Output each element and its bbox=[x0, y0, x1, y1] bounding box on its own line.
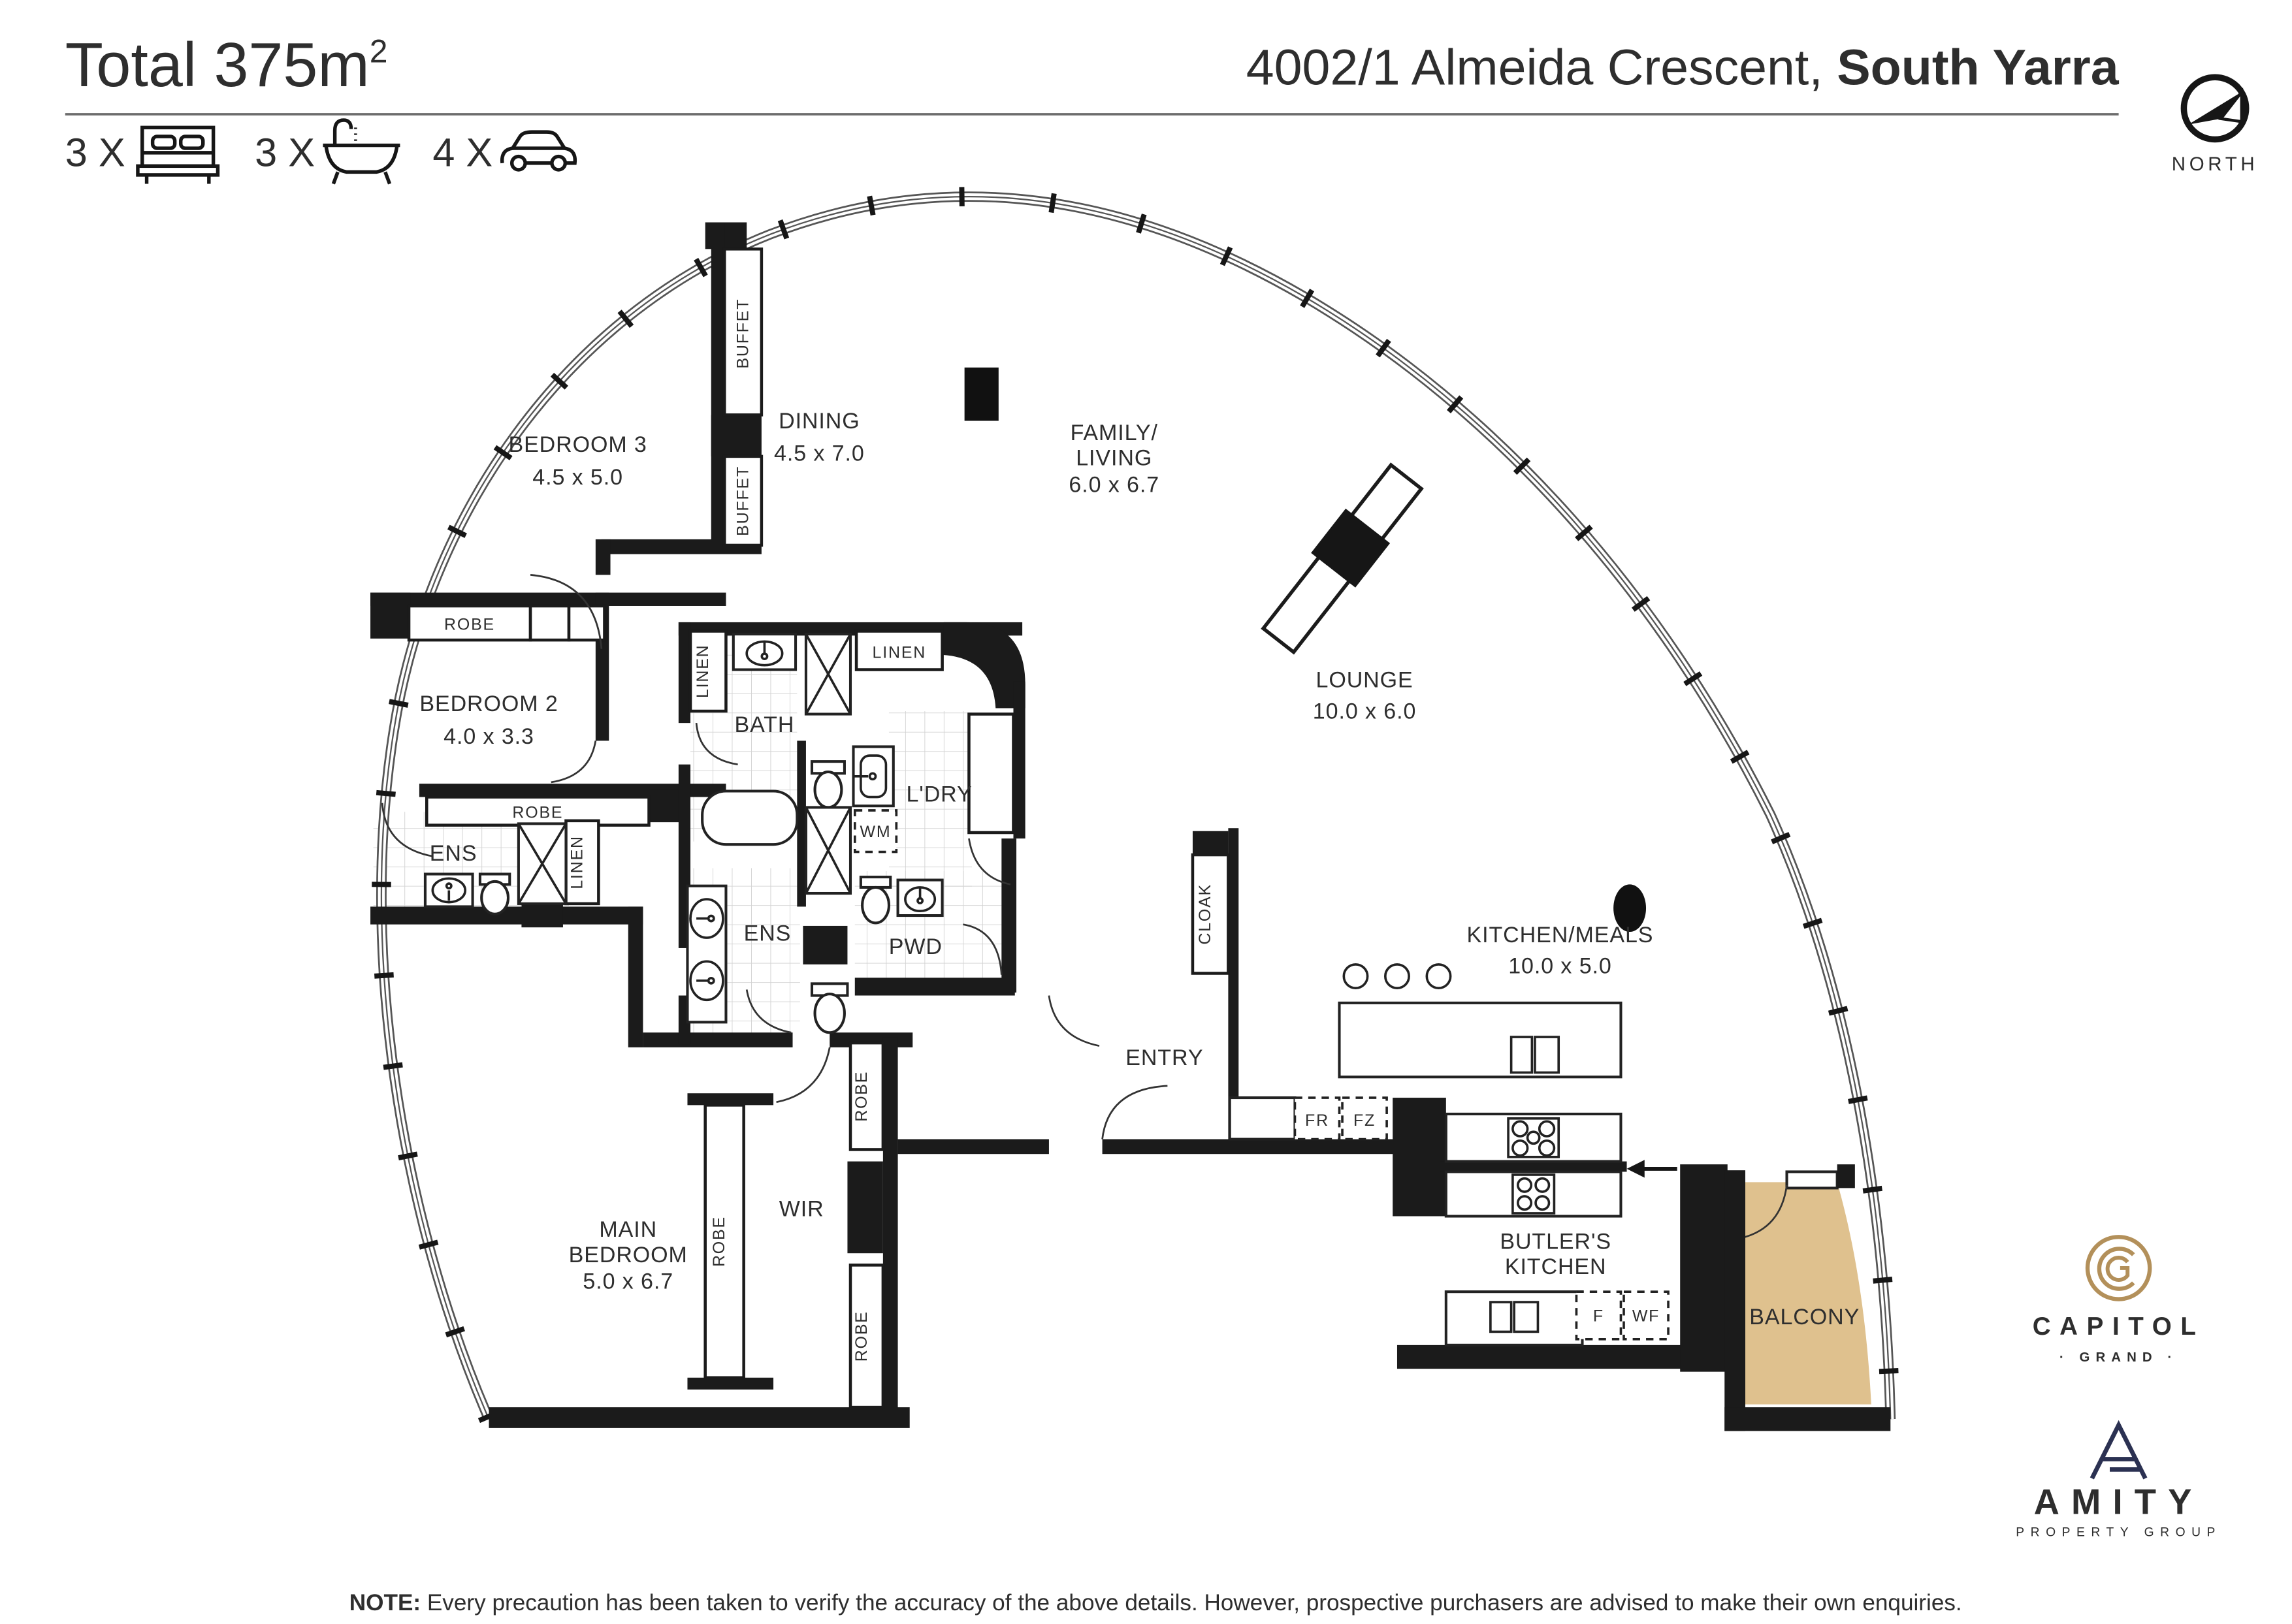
entry-bench bbox=[1230, 1098, 1295, 1139]
washing-machine: WM bbox=[855, 810, 897, 852]
buffet-label-bottom: BUFFET bbox=[734, 466, 752, 536]
robe-bed3-label: ROBE bbox=[444, 615, 495, 633]
ldry-bench bbox=[969, 714, 1013, 833]
entry-label: ENTRY bbox=[1125, 1045, 1203, 1070]
bedroom2-label: BEDROOM 2 bbox=[419, 692, 558, 716]
main-bedroom-label-2: BEDROOM bbox=[569, 1243, 688, 1267]
shower-ens bbox=[806, 807, 850, 893]
fridge: FR bbox=[1295, 1098, 1339, 1139]
kitchen-label: KITCHEN/MEALS bbox=[1467, 923, 1654, 947]
disclaimer-note: NOTE: Every precaution has been taken to… bbox=[349, 1590, 1962, 1616]
family-label-2: LIVING bbox=[1076, 445, 1152, 470]
butlers-label-1: BUTLER'S bbox=[1500, 1229, 1611, 1254]
svg-text:AMITY: AMITY bbox=[2034, 1482, 2204, 1521]
kitchen-island bbox=[1340, 1003, 1621, 1077]
cloak-label: CLOAK bbox=[1196, 884, 1214, 945]
wir-label: WIR bbox=[779, 1197, 824, 1222]
ens-label: ENS bbox=[744, 921, 792, 946]
north-label: NORTH bbox=[2172, 153, 2259, 175]
cars-count: 4 X bbox=[432, 130, 492, 174]
butlers-bench-mid bbox=[1446, 1171, 1621, 1216]
column-family bbox=[965, 368, 999, 421]
bathtub bbox=[702, 791, 797, 845]
balcony-door bbox=[1787, 1171, 1837, 1188]
toilet-ens2 bbox=[480, 874, 509, 914]
svg-text:F: F bbox=[1593, 1307, 1604, 1326]
pwd-label: PWD bbox=[889, 934, 943, 959]
main-bedroom-dims: 5.0 x 6.7 bbox=[583, 1269, 673, 1294]
lounge-label: LOUNGE bbox=[1316, 668, 1413, 693]
address: 4002/1 Almeida Crescent, South Yarra bbox=[1246, 40, 2120, 96]
floorplan-page: Total 375m2 4002/1 Almeida Crescent, Sou… bbox=[0, 0, 2292, 1621]
svg-text:· GRAND ·: · GRAND · bbox=[2059, 1350, 2178, 1365]
svg-text:ROBE: ROBE bbox=[852, 1071, 871, 1122]
ldry-label: L'DRY bbox=[906, 782, 972, 806]
wir-island-robe-label: ROBE bbox=[710, 1216, 728, 1267]
toilet-bath bbox=[812, 761, 845, 807]
bedroom3-dims: 4.5 x 5.0 bbox=[532, 465, 623, 490]
svg-text:PROPERTY GROUP: PROPERTY GROUP bbox=[2016, 1525, 2221, 1539]
lounge-dims: 10.0 x 6.0 bbox=[1313, 699, 1416, 724]
integrated-fridge: F bbox=[1576, 1292, 1621, 1339]
svg-text:ROBE: ROBE bbox=[852, 1311, 871, 1361]
pwd-vanity bbox=[898, 880, 943, 915]
svg-text:FZ: FZ bbox=[1353, 1111, 1376, 1130]
shower-bath bbox=[806, 634, 850, 714]
svg-text:FR: FR bbox=[1305, 1111, 1329, 1130]
toilet-pwd bbox=[861, 877, 890, 923]
linen-hall-label: LINEN bbox=[873, 643, 927, 661]
buffet-label-top: BUFFET bbox=[734, 298, 752, 369]
svg-text:WF: WF bbox=[1632, 1307, 1660, 1326]
page-background bbox=[0, 0, 2292, 1620]
bedroom2-dims: 4.0 x 3.3 bbox=[444, 724, 534, 749]
robe-bed2-label: ROBE bbox=[512, 803, 563, 821]
main-bedroom-label-1: MAIN bbox=[599, 1217, 657, 1242]
freezer: FZ bbox=[1342, 1098, 1387, 1139]
butlers-label-2: KITCHEN bbox=[1505, 1254, 1607, 1279]
ens2-label: ENS bbox=[430, 841, 477, 866]
ens2-vanity bbox=[425, 874, 473, 907]
family-dims: 6.0 x 6.7 bbox=[1069, 472, 1159, 497]
bath-label: BATH bbox=[735, 712, 795, 737]
bedroom3-label: BEDROOM 3 bbox=[508, 432, 647, 457]
family-label-1: FAMILY/ bbox=[1071, 421, 1158, 445]
wm-label: WM bbox=[860, 823, 892, 841]
beds-count: 3 X bbox=[65, 130, 125, 174]
toilet-ens bbox=[812, 983, 847, 1032]
shower-ens2 bbox=[519, 823, 566, 903]
linen-ens2-label: LINEN bbox=[568, 835, 586, 889]
laundry-trough bbox=[854, 746, 894, 806]
kitchen-dims: 10.0 x 5.0 bbox=[1508, 954, 1611, 979]
baths-count: 3 X bbox=[255, 130, 315, 174]
dining-label: DINING bbox=[779, 409, 860, 434]
page-title: Total 375m2 bbox=[65, 31, 388, 100]
butlers-bench-top bbox=[1446, 1114, 1621, 1162]
dining-dims: 4.5 x 7.0 bbox=[774, 441, 865, 466]
svg-text:CAPITOL: CAPITOL bbox=[2033, 1313, 2205, 1341]
wine-fridge: WF bbox=[1624, 1292, 1668, 1339]
linen-bath-label: LINEN bbox=[694, 645, 712, 699]
balcony-label: BALCONY bbox=[1749, 1305, 1860, 1329]
